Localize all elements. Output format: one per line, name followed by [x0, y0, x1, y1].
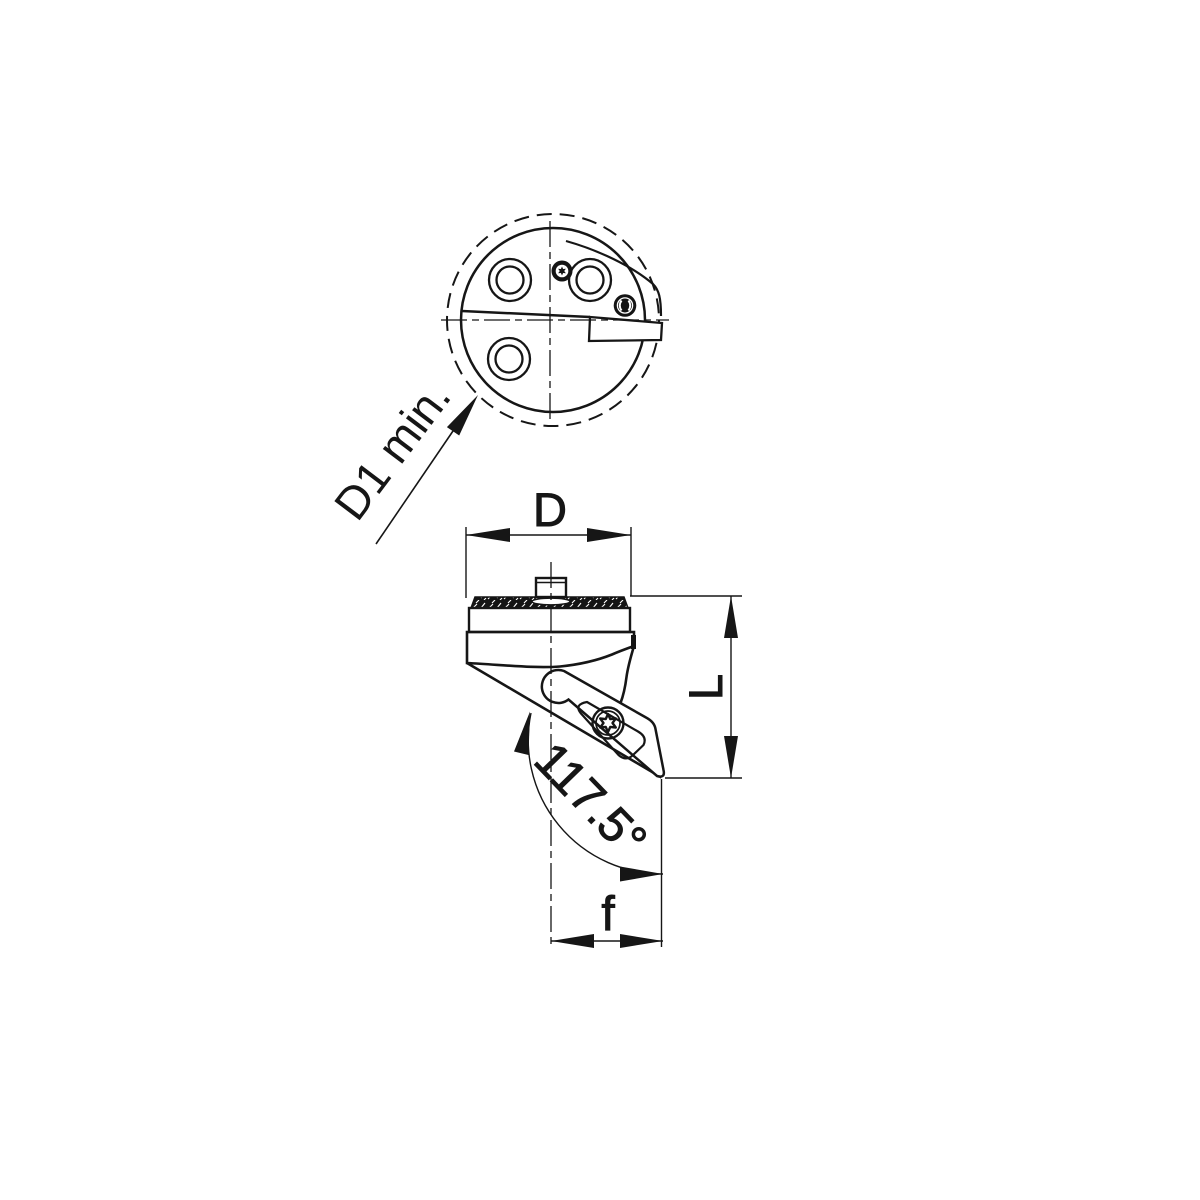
mount-hole-lower-left	[488, 338, 530, 380]
leader-d1-min: D1 min.	[324, 371, 478, 544]
mount-hole-upper-right	[569, 259, 611, 301]
mount-hole-upper-left	[489, 259, 531, 301]
top-view	[441, 214, 669, 426]
label-length-l: L	[679, 674, 732, 700]
pocket-chord-line	[462, 311, 590, 317]
label-diameter-d: D	[533, 483, 567, 536]
clamp-screw-small	[552, 261, 573, 282]
technical-drawing-canvas: D1 min.	[0, 0, 1200, 1200]
label-offset-f: f	[601, 888, 615, 941]
upper-cylinder	[469, 608, 630, 632]
clamp-screw-large	[614, 294, 637, 317]
technical-drawing-page: D1 min.	[0, 0, 1200, 1200]
head-right-profile	[621, 646, 635, 703]
